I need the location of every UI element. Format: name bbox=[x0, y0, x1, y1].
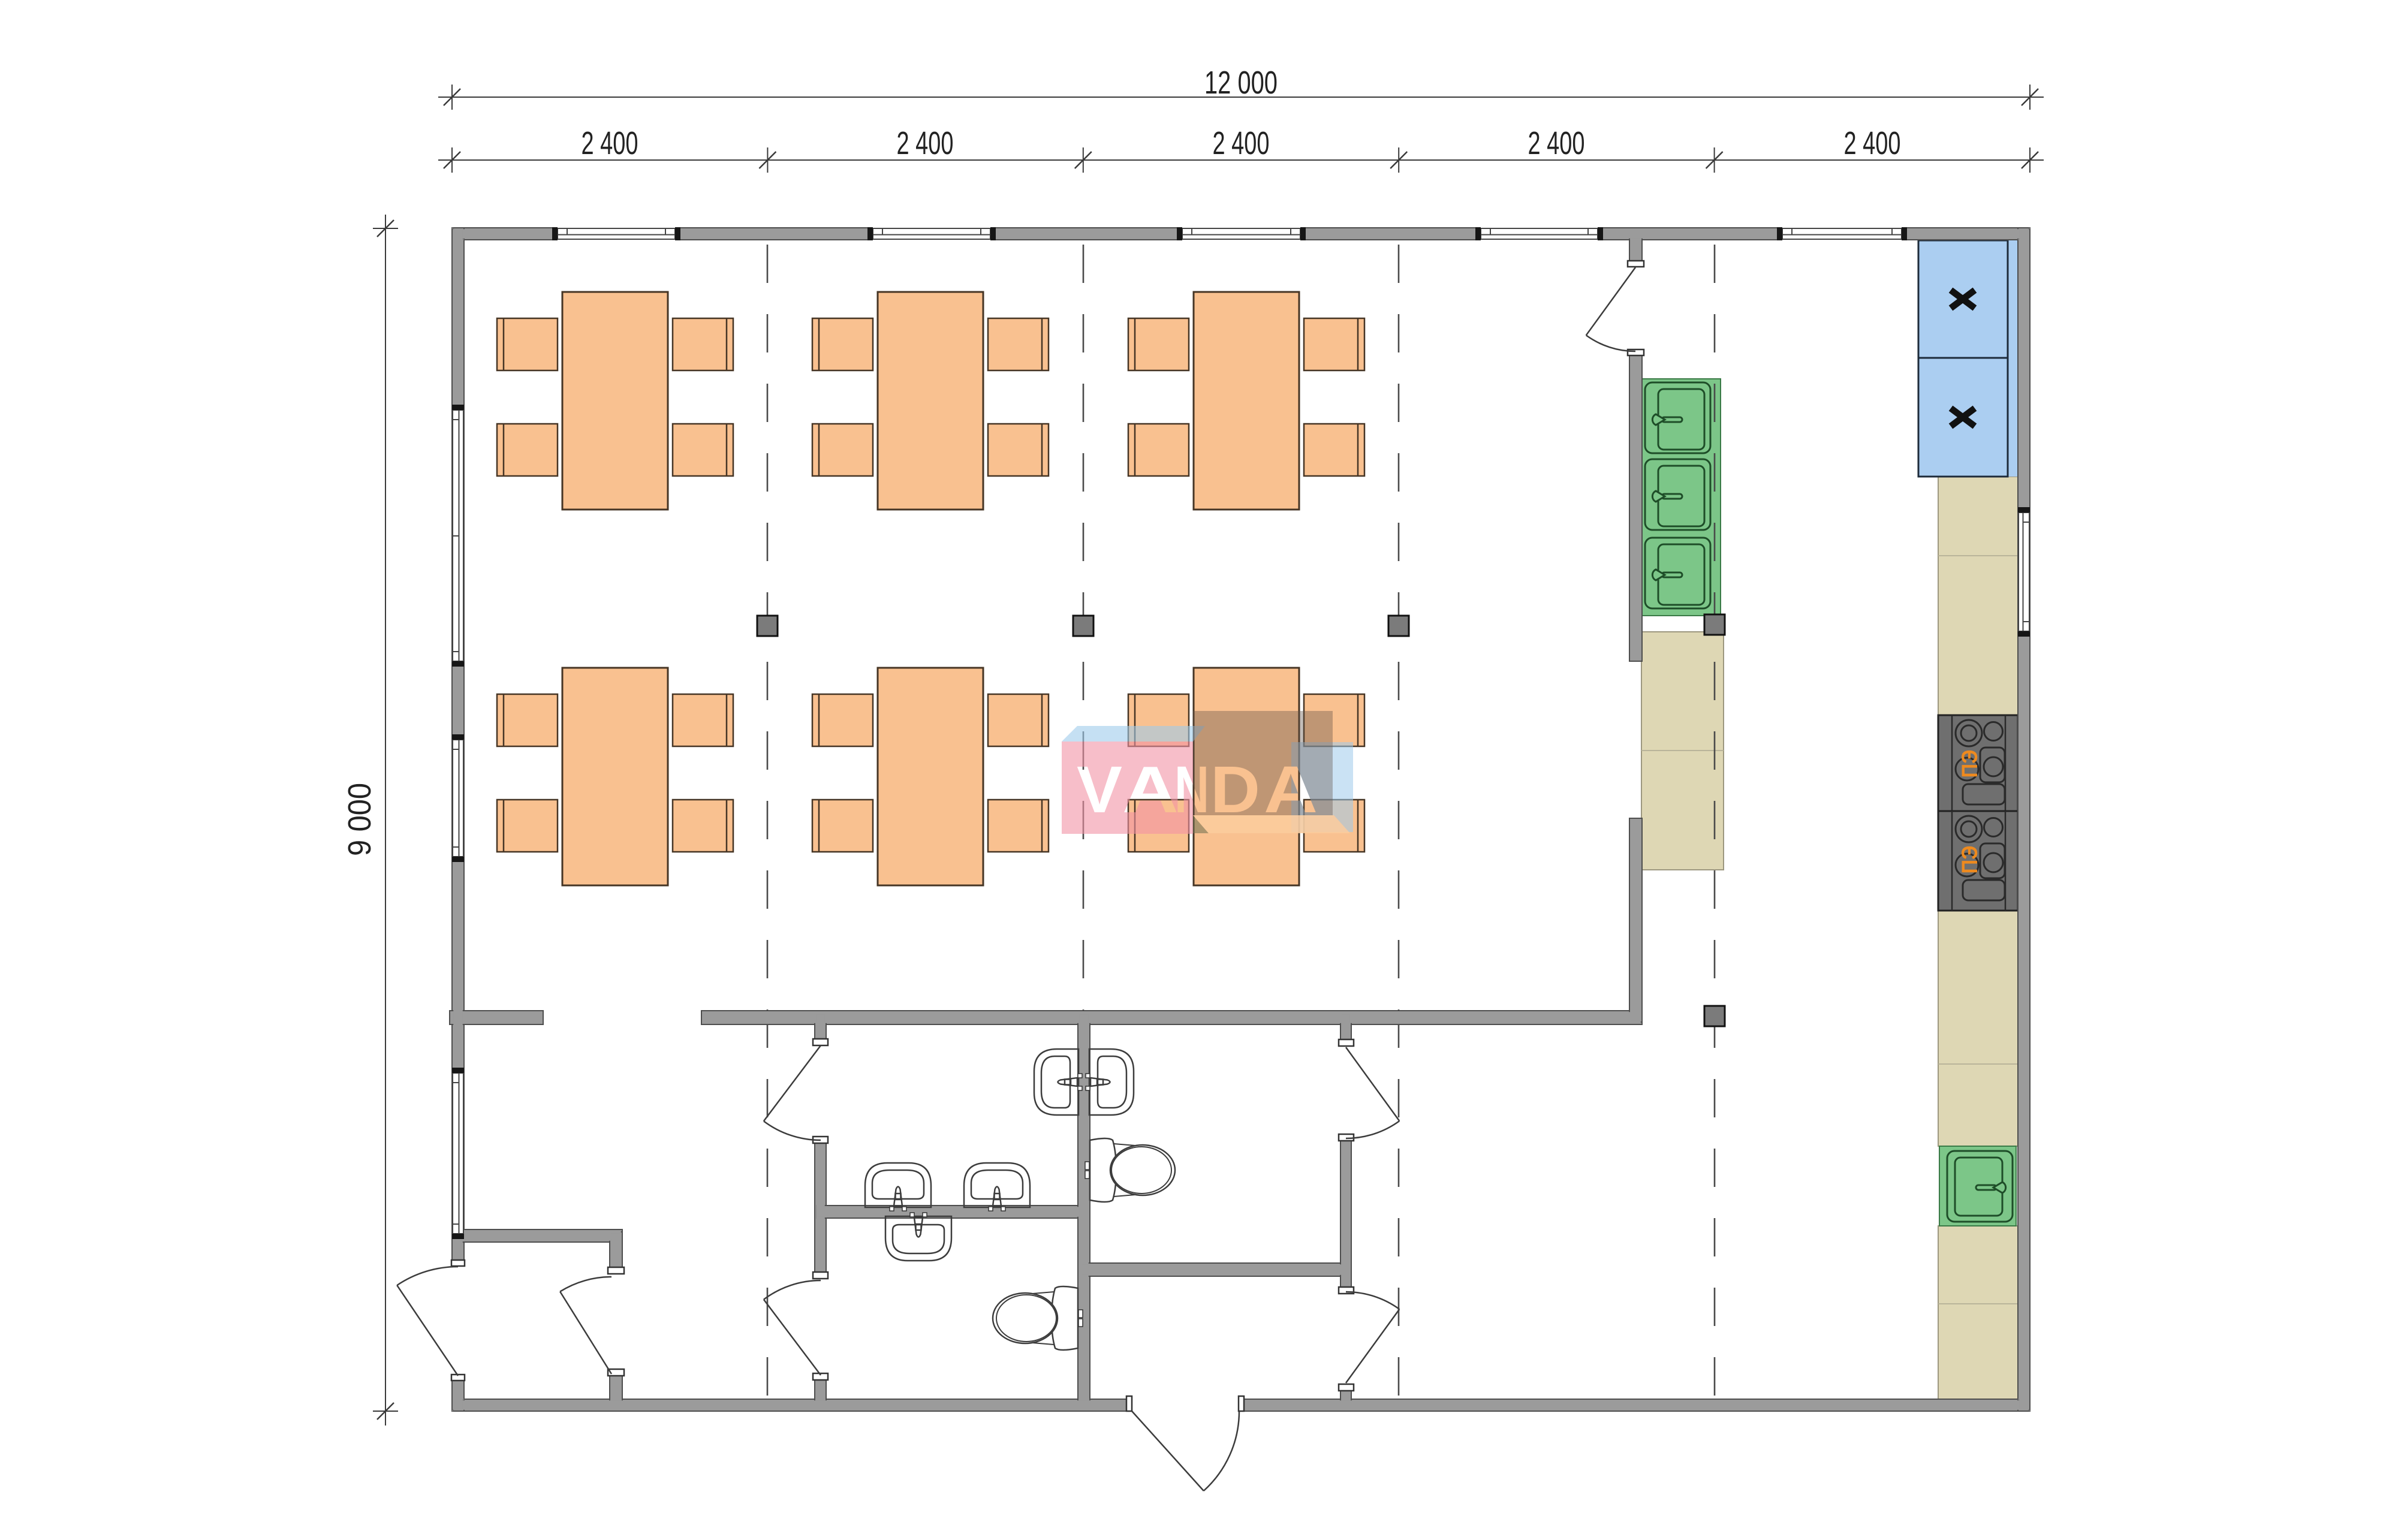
svg-text:12 000: 12 000 bbox=[1204, 65, 1278, 101]
svg-text:2 400: 2 400 bbox=[1213, 125, 1270, 161]
svg-text:9 000: 9 000 bbox=[342, 783, 378, 856]
svg-text:ПЭ: ПЭ bbox=[1957, 846, 1982, 874]
svg-text:2 400: 2 400 bbox=[582, 125, 638, 161]
svg-text:ПЭ: ПЭ bbox=[1957, 750, 1982, 778]
svg-text:2 400: 2 400 bbox=[897, 125, 954, 161]
svg-text:2 400: 2 400 bbox=[1844, 125, 1901, 161]
svg-text:2 400: 2 400 bbox=[1528, 125, 1585, 161]
